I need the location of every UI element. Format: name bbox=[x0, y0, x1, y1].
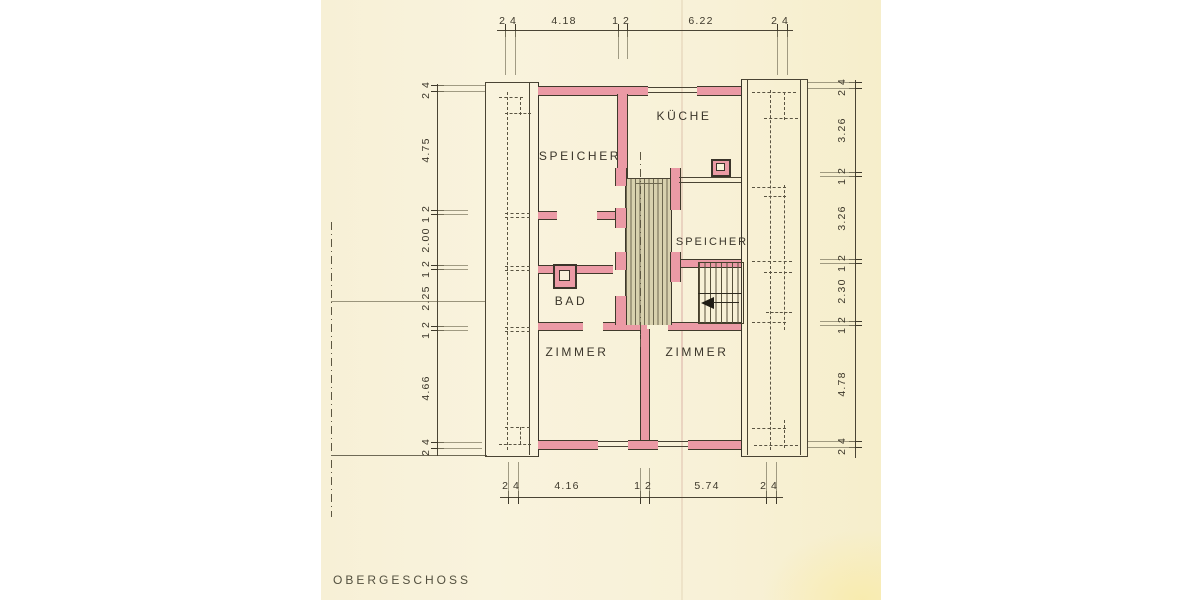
dim-extension bbox=[438, 210, 468, 211]
right-band-inner-line bbox=[747, 79, 748, 455]
roof-dashed-line bbox=[505, 113, 531, 114]
roof-dashed-line bbox=[520, 97, 521, 115]
dim-label-bottom-416: 4.16 bbox=[554, 480, 579, 492]
room-label-zimmer-right: ZIMMER bbox=[666, 345, 729, 359]
wall-landing-right bbox=[597, 211, 617, 220]
roof-dashed-line bbox=[505, 266, 530, 267]
dim-label-right-478: 4.78 bbox=[836, 371, 848, 396]
window-bottom-left bbox=[598, 446, 628, 447]
dim-label-right-12: 12 bbox=[836, 312, 848, 334]
window-bottom-left bbox=[598, 441, 628, 442]
roof-dashed-line bbox=[764, 196, 786, 197]
paper-fold-line bbox=[681, 0, 683, 600]
dim-label-left-225: 2.25 bbox=[420, 285, 432, 310]
dim-extension bbox=[618, 31, 619, 59]
roof-dashed-line bbox=[754, 445, 798, 446]
shaft-wall-stub bbox=[615, 208, 627, 228]
dim-label-left-12: 12 bbox=[420, 256, 432, 278]
dim-extension bbox=[438, 265, 468, 266]
dim-extension bbox=[505, 31, 506, 75]
shaft-wall-stub bbox=[670, 252, 681, 282]
roof-dashed-line bbox=[764, 272, 792, 273]
wall-zimmer-left-top bbox=[538, 322, 583, 331]
dim-label-left-475: 4.75 bbox=[420, 137, 432, 162]
window-bottom-right bbox=[658, 441, 688, 442]
dim-extension bbox=[438, 85, 486, 86]
exterior-wall-top-left bbox=[538, 86, 648, 96]
roof-dashed-line bbox=[784, 185, 785, 330]
roof-dashed-line bbox=[507, 92, 508, 450]
dim-extension bbox=[438, 330, 468, 331]
roof-dashed-line bbox=[505, 217, 530, 218]
dim-line-left bbox=[437, 84, 438, 456]
room-label-kueche: KÜCHE bbox=[656, 109, 711, 123]
dim-label-left-466: 4.66 bbox=[420, 375, 432, 400]
roof-dashed-line bbox=[520, 427, 521, 444]
shaft-top-line bbox=[625, 178, 670, 179]
dim-label-bottom-24: 24 bbox=[502, 480, 524, 492]
roof-dashed-line bbox=[752, 261, 792, 262]
dim-label-right-326: 3.26 bbox=[836, 205, 848, 230]
dim-label-right-24: 24 bbox=[836, 74, 848, 96]
shaft-wall-stub bbox=[615, 168, 627, 186]
dim-label-top-24: 24 bbox=[499, 15, 521, 27]
exterior-wall-top-right bbox=[697, 86, 741, 96]
dim-label-right-12: 12 bbox=[836, 250, 848, 272]
dim-label-top-622: 6.22 bbox=[688, 15, 713, 27]
wall-zimmer-divider bbox=[640, 329, 650, 442]
roof-dashed-line bbox=[752, 322, 786, 323]
scanned-paper-sheet: 24 4.18 12 6.22 24 24 4.16 12 5.74 24 24… bbox=[321, 0, 881, 600]
roof-dashed-line bbox=[505, 327, 530, 328]
dim-extension bbox=[627, 31, 628, 59]
exterior-wall-bottom-right bbox=[688, 440, 741, 450]
dim-label-bottom-12: 12 bbox=[634, 480, 656, 492]
dim-extension bbox=[438, 91, 486, 92]
shaft-wall-stub bbox=[615, 252, 627, 270]
right-eaves-band bbox=[741, 79, 808, 457]
stair-shaft-hatch bbox=[625, 178, 672, 325]
dim-label-right-326: 3.26 bbox=[836, 117, 848, 142]
roof-dashed-line bbox=[752, 187, 786, 188]
partition-line bbox=[679, 177, 741, 178]
exterior-wall-bottom-left bbox=[538, 440, 598, 450]
roof-dashed-line bbox=[505, 427, 530, 428]
dim-label-left-200: 2.00 bbox=[420, 227, 432, 252]
dim-extension bbox=[777, 31, 778, 75]
roof-dashed-line bbox=[770, 90, 771, 450]
roof-dashed-line bbox=[505, 270, 530, 271]
stair-arrow-tail bbox=[713, 302, 739, 303]
dim-label-right-230: 2.30 bbox=[836, 278, 848, 303]
annex-outline-vertical bbox=[331, 222, 332, 517]
dim-line-bottom bbox=[500, 497, 783, 498]
annex-outline-bottom bbox=[331, 455, 487, 456]
shaft-wall-stub bbox=[670, 168, 681, 210]
floorplan-canvas: 24 4.18 12 6.22 24 24 4.16 12 5.74 24 24… bbox=[0, 0, 1200, 600]
dim-extension bbox=[438, 214, 468, 215]
roof-dashed-line bbox=[752, 92, 796, 93]
room-label-bad: BAD bbox=[555, 294, 587, 308]
dim-extension bbox=[438, 269, 468, 270]
sheet-title: OBERGESCHOSS bbox=[333, 573, 471, 587]
chimney-kueche-flue bbox=[716, 163, 725, 171]
dim-label-top-418: 4.18 bbox=[551, 15, 576, 27]
stair-direction-arrow bbox=[701, 297, 714, 309]
dim-extension bbox=[438, 442, 482, 443]
dim-extension bbox=[438, 326, 468, 327]
dim-extension bbox=[515, 31, 516, 75]
dim-label-right-12: 12 bbox=[836, 163, 848, 185]
roof-dashed-line bbox=[784, 92, 785, 120]
right-band-outer-inner-line bbox=[800, 79, 801, 455]
dim-label-left-12: 12 bbox=[420, 201, 432, 223]
wall-landing-left bbox=[538, 211, 557, 220]
roof-dashed-line bbox=[752, 428, 786, 429]
dim-line-right bbox=[855, 80, 856, 458]
centerline-dashdot bbox=[640, 152, 641, 348]
room-label-speicher-left: SPEICHER bbox=[539, 149, 621, 163]
chimney-bad-flue bbox=[559, 270, 570, 281]
dim-label-left-24: 24 bbox=[420, 434, 432, 456]
dim-label-left-24: 24 bbox=[420, 77, 432, 99]
window-bottom-right bbox=[658, 446, 688, 447]
room-label-speicher-right: SPEICHER bbox=[676, 236, 748, 248]
roof-dashed-line bbox=[764, 118, 798, 119]
room-label-zimmer-left: ZIMMER bbox=[546, 345, 609, 359]
roof-dashed-line bbox=[505, 331, 530, 332]
dim-label-left-12: 12 bbox=[420, 317, 432, 339]
dim-line-top bbox=[497, 30, 793, 31]
dim-label-top-12: 12 bbox=[612, 15, 634, 27]
roof-dashed-line bbox=[505, 213, 530, 214]
roof-dashed-line bbox=[499, 444, 531, 445]
dim-extension bbox=[787, 31, 788, 75]
partition-line bbox=[679, 182, 741, 183]
shaft-wall-stub bbox=[615, 296, 627, 325]
roof-dashed-line bbox=[766, 312, 792, 313]
dim-label-right-24: 24 bbox=[836, 433, 848, 455]
annex-outline-top bbox=[331, 301, 486, 302]
dim-label-bottom-24: 24 bbox=[760, 480, 782, 492]
left-band-inner-line bbox=[529, 82, 530, 455]
dim-extension bbox=[438, 448, 482, 449]
exterior-wall-bottom-mid bbox=[628, 440, 658, 450]
roof-dashed-line bbox=[784, 420, 785, 448]
dim-label-top-24: 24 bbox=[771, 15, 793, 27]
window-top bbox=[648, 92, 697, 93]
window-top bbox=[648, 87, 697, 88]
dim-label-bottom-574: 5.74 bbox=[694, 480, 719, 492]
stair-mid-line bbox=[698, 293, 742, 294]
